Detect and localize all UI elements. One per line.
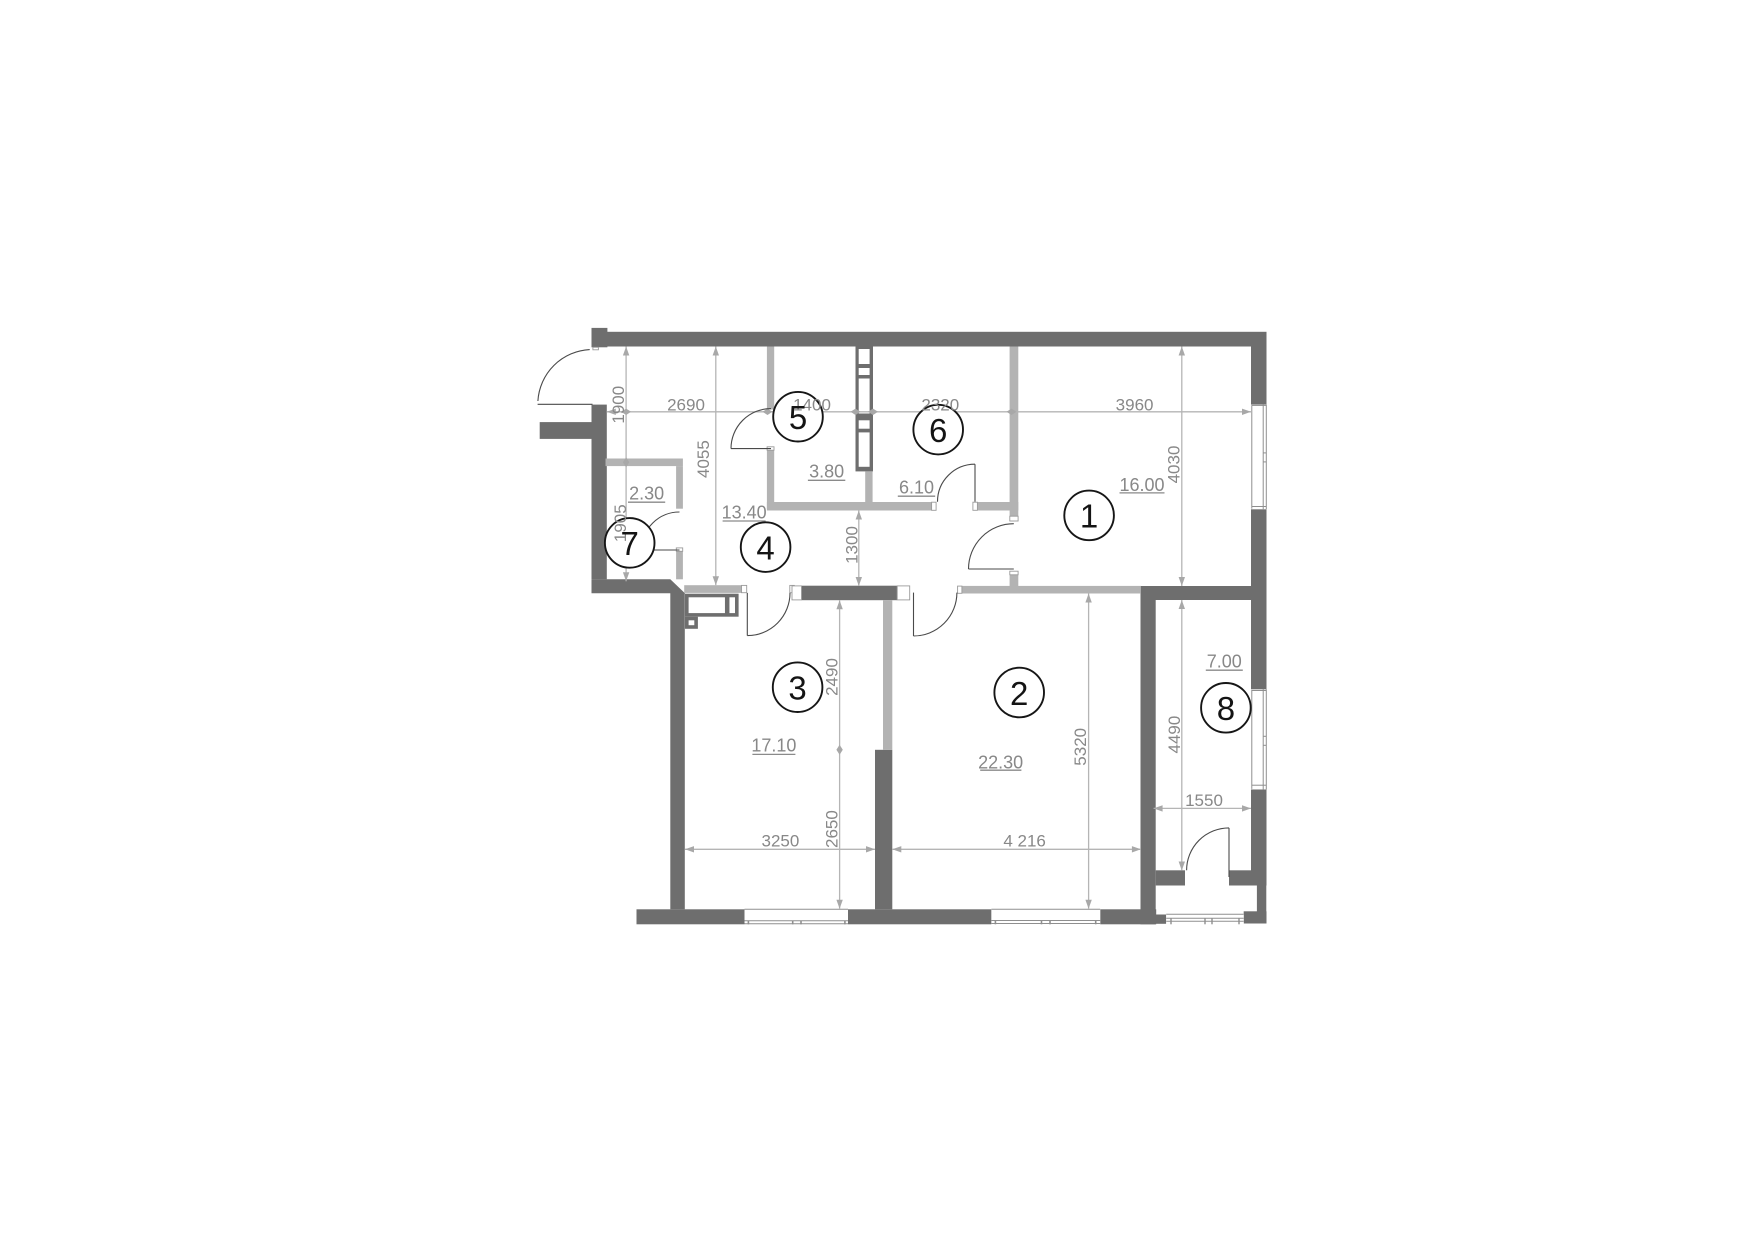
svg-text:2.30: 2.30 — [629, 484, 664, 504]
svg-text:5320: 5320 — [1071, 728, 1090, 766]
svg-text:2690: 2690 — [667, 395, 705, 414]
svg-text:1300: 1300 — [843, 526, 862, 564]
svg-text:17.10: 17.10 — [751, 736, 796, 756]
svg-text:3960: 3960 — [1116, 395, 1154, 414]
svg-text:8: 8 — [1217, 690, 1235, 727]
svg-text:3250: 3250 — [761, 832, 799, 851]
svg-text:4: 4 — [756, 529, 774, 566]
svg-text:7: 7 — [621, 525, 639, 562]
svg-text:13.40: 13.40 — [722, 502, 767, 522]
svg-text:4490: 4490 — [1165, 716, 1184, 754]
svg-text:16.00: 16.00 — [1119, 475, 1164, 495]
svg-text:2490: 2490 — [823, 658, 842, 696]
svg-text:3: 3 — [788, 670, 806, 707]
svg-text:3.80: 3.80 — [809, 462, 844, 482]
svg-text:6: 6 — [929, 412, 947, 449]
svg-text:2: 2 — [1010, 675, 1028, 712]
svg-text:1550: 1550 — [1185, 791, 1223, 810]
svg-text:1: 1 — [1080, 498, 1098, 535]
svg-text:6.10: 6.10 — [899, 478, 934, 498]
svg-text:4030: 4030 — [1165, 446, 1184, 484]
svg-text:5: 5 — [789, 399, 807, 436]
svg-text:4055: 4055 — [694, 440, 713, 478]
svg-text:7.00: 7.00 — [1207, 652, 1242, 672]
svg-text:4 216: 4 216 — [1003, 832, 1046, 851]
svg-text:2650: 2650 — [823, 810, 842, 848]
svg-text:1900: 1900 — [609, 386, 628, 424]
